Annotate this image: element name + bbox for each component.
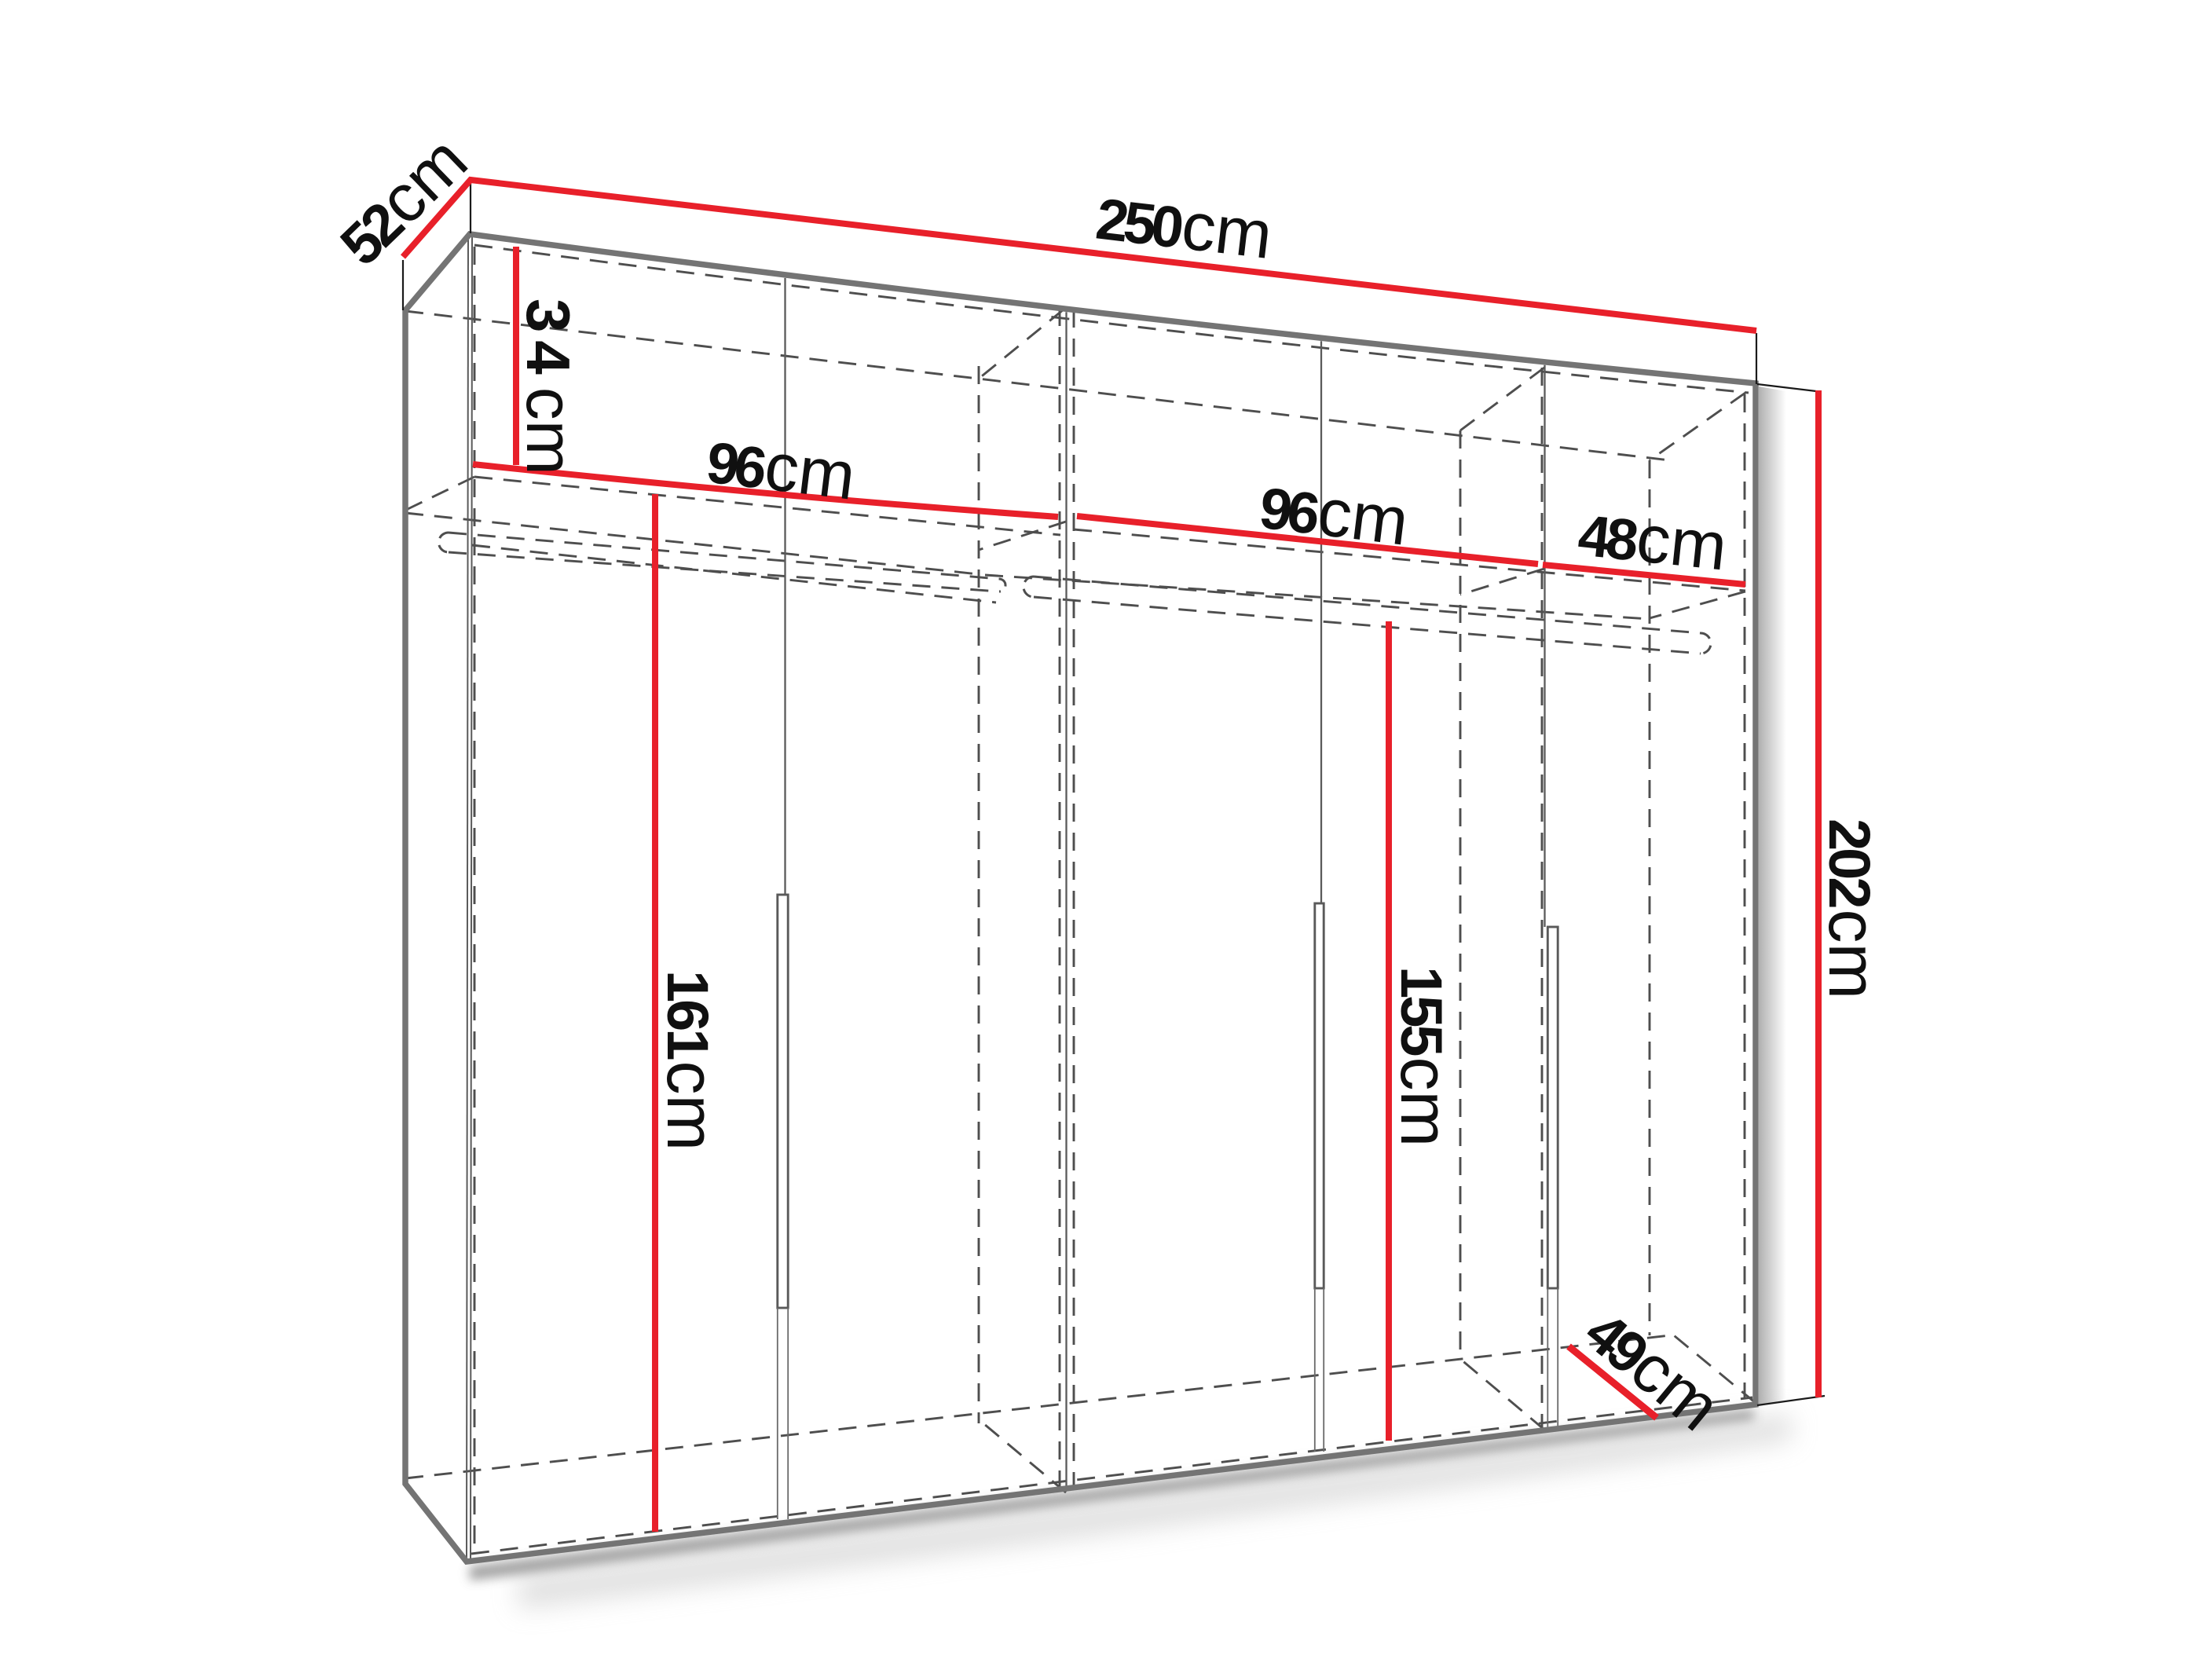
svg-text:34cm: 34cm <box>513 298 587 475</box>
svg-text:155cm: 155cm <box>1386 966 1462 1147</box>
svg-text:161cm: 161cm <box>653 970 728 1151</box>
svg-text:202cm: 202cm <box>1815 819 1890 999</box>
